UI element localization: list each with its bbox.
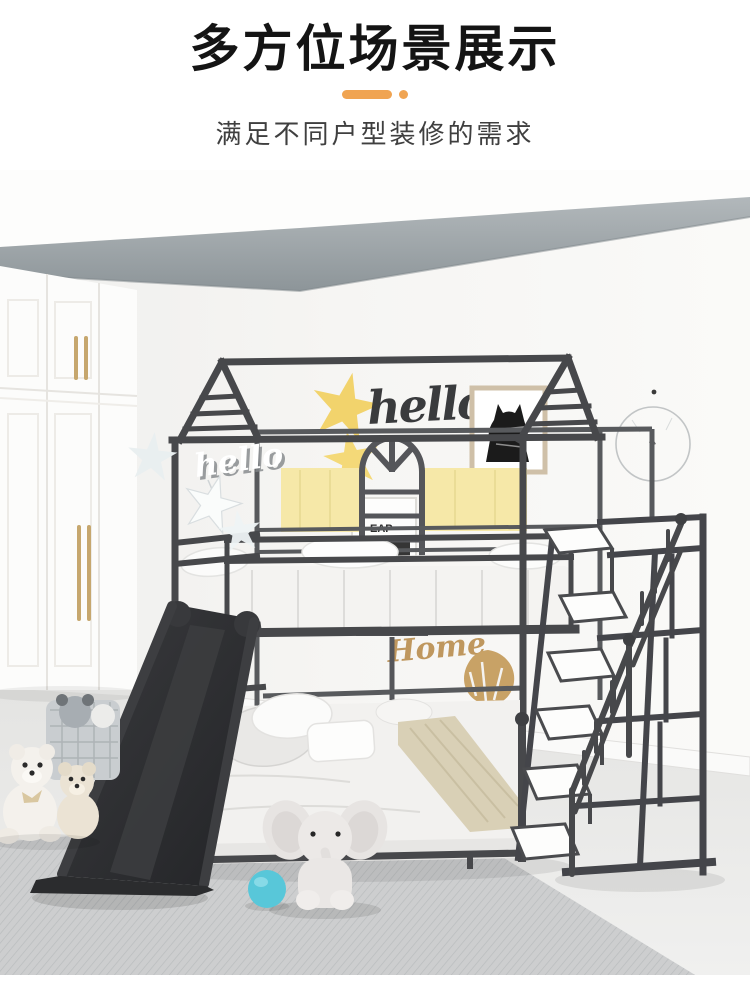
front-eaves-rail — [172, 437, 602, 440]
ball-finial — [675, 513, 687, 525]
accent-divider — [0, 90, 750, 99]
roof-ridge — [222, 358, 568, 362]
ball-finial — [515, 712, 529, 726]
divider-pill — [342, 90, 392, 99]
divider-dot — [399, 90, 408, 99]
page-title: 多方位场景展示 — [0, 0, 750, 77]
section-header: 多方位场景展示 满足不同户型装修的需求 — [0, 0, 750, 170]
teddy-bear-cream — [57, 762, 99, 839]
white-plush-toy — [91, 704, 115, 728]
page-subtitle: 满足不同户型装修的需求 — [0, 114, 750, 151]
pillow — [307, 720, 375, 763]
wardrobe — [0, 266, 145, 702]
ball-finial — [623, 634, 635, 646]
product-showcase-page: 多方位场景展示 满足不同户型装修的需求 — [0, 0, 750, 989]
room-photo: hello EAP — [0, 170, 750, 975]
